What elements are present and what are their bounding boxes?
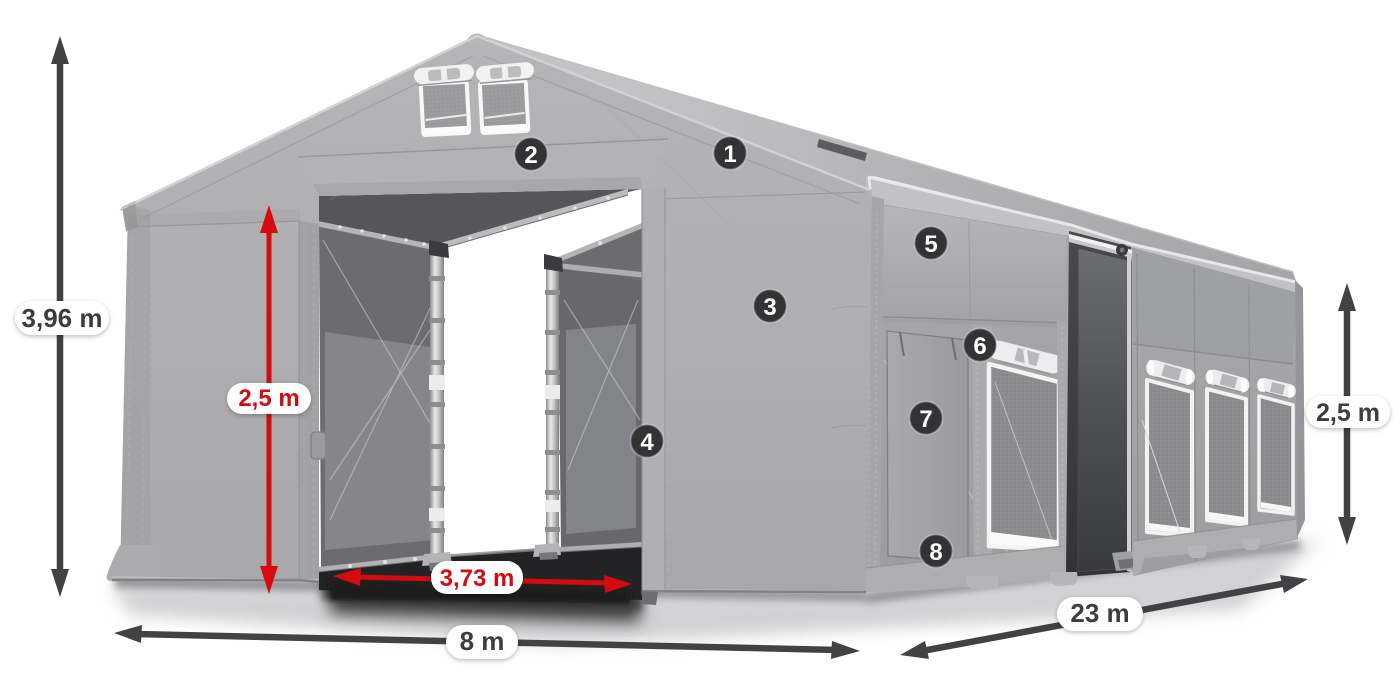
- svg-text:2: 2: [524, 142, 537, 169]
- svg-text:23 m: 23 m: [1070, 598, 1129, 628]
- svg-text:2,5 m: 2,5 m: [1316, 399, 1380, 427]
- svg-text:3,96 m: 3,96 m: [22, 303, 103, 333]
- svg-text:1: 1: [723, 141, 736, 168]
- svg-text:5: 5: [924, 231, 937, 258]
- svg-text:8: 8: [929, 539, 942, 566]
- svg-text:3: 3: [763, 294, 776, 321]
- svg-text:4: 4: [640, 429, 654, 456]
- svg-text:8 m: 8 m: [460, 626, 505, 656]
- svg-text:7: 7: [919, 406, 932, 433]
- svg-text:2,5 m: 2,5 m: [238, 385, 299, 412]
- svg-text:3,73 m: 3,73 m: [440, 565, 515, 592]
- svg-text:6: 6: [973, 333, 986, 360]
